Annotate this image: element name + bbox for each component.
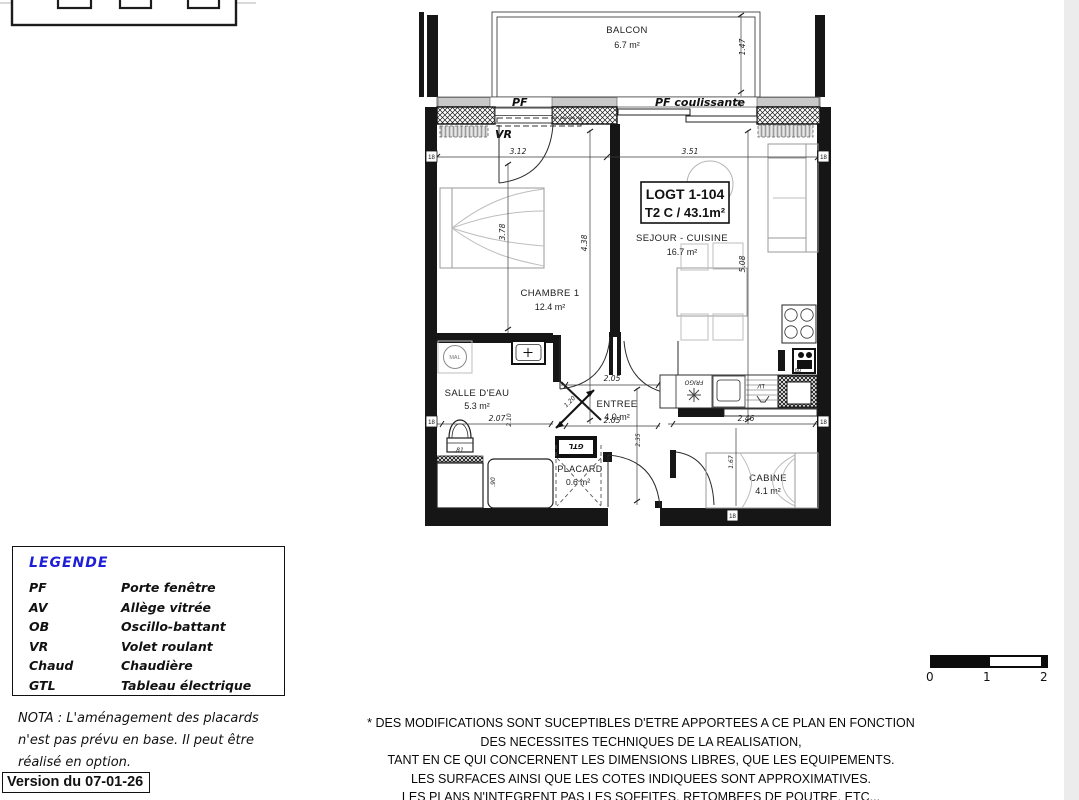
- sofa: [768, 144, 818, 252]
- dim-entree-h: 2.35: [635, 433, 642, 447]
- washbasin: [512, 341, 545, 364]
- dim-cabine-h: 1.67: [728, 455, 735, 469]
- wall-mark: 18: [428, 155, 435, 161]
- wall-mark: 18: [820, 420, 827, 426]
- dim-sejour-h: 5.08: [738, 255, 747, 272]
- legend-item-gtl: GTLTableau électrique: [29, 678, 269, 693]
- disclaimer-line: DES NECESSITES TECHNIQUES DE LA REALISAT…: [358, 733, 924, 752]
- sejour-label: SEJOUR - CUISINE: [636, 233, 728, 244]
- legend-abbr: VR: [29, 639, 121, 654]
- washing-machine: MAL: [438, 341, 472, 373]
- boiler: 60: [793, 349, 815, 374]
- cabine-area: 4.1 m²: [755, 486, 781, 496]
- pf-coulissante-label: PF coulissante: [655, 96, 745, 109]
- nota-note: NOTA : L'aménagement des placards n'est …: [18, 708, 308, 774]
- entree-label: ENTREE: [597, 399, 638, 410]
- scale-tick-0: 0: [926, 670, 934, 684]
- legend-abbr: AV: [29, 600, 121, 615]
- disclaimer-line: LES PLANS N'INTEGRENT PAS LES SOFFITES, …: [358, 788, 924, 800]
- legend-label: Chaudière: [121, 658, 193, 673]
- logt-title-box: LOGT 1-104 T2 C / 43.1m²: [641, 182, 729, 223]
- scale-bar: 0 1 2: [930, 655, 1050, 686]
- legend-label: Volet roulant: [121, 639, 213, 654]
- legend-abbr: OB: [29, 619, 121, 634]
- version-label: Version du 07-01-26: [7, 774, 143, 790]
- legend-item-chaud: ChaudChaudière: [29, 658, 269, 673]
- dim-sdb-h: 2.10: [506, 413, 513, 427]
- disclaimer-line: * DES MODIFICATIONS SONT SUCEPTIBLES D'E…: [358, 714, 924, 733]
- salle-eau-area: 5.3 m²: [464, 401, 490, 411]
- chambre-label: CHAMBRE 1: [520, 288, 579, 299]
- cooktop: [782, 305, 816, 343]
- wall-mark: 18: [729, 514, 736, 520]
- legend-item-pf: PFPorte fenêtre: [29, 580, 269, 595]
- vr-label: VR: [495, 128, 512, 141]
- logt-type-surface: T2 C / 43.1m²: [645, 205, 726, 220]
- salle-eau-label: SALLE D'EAU: [445, 388, 510, 399]
- logt-number: LOGT 1-104: [646, 186, 725, 202]
- dim-left-h: 4.38: [580, 234, 589, 251]
- legend-title: LEGENDE: [29, 555, 108, 571]
- cabine-label: CABINE: [749, 473, 787, 484]
- floor-plan-page: BALCON 6.7 m² 1.47 34: [0, 0, 1079, 800]
- scale-tick-2: 2: [1040, 670, 1048, 684]
- wall-mark: 18: [820, 155, 827, 161]
- nota-line: NOTA : L'aménagement des placards: [18, 708, 308, 730]
- mal-label: MAL: [449, 355, 460, 361]
- pf-window: [495, 108, 552, 123]
- cabine-door: [676, 452, 714, 505]
- legend-label: Allège vitrée: [121, 600, 211, 615]
- legend-item-vr: VRVolet roulant: [29, 639, 269, 654]
- sejour-area: 16.7 m²: [667, 247, 698, 257]
- legend-item-av: AVAllège vitrée: [29, 600, 269, 615]
- dim-sdb-w: 2.07: [489, 414, 506, 423]
- kitchen: FRIGO LV: [660, 305, 817, 408]
- dim-wc: .81: [454, 447, 464, 454]
- legend-box: LEGENDE PFPorte fenêtre AVAllège vitrée …: [12, 546, 285, 696]
- scale-segment-1-2: [988, 655, 1043, 668]
- frigo-label: FRIGO: [684, 379, 703, 386]
- placard-area: 0.6 m²: [566, 477, 590, 487]
- legend-abbr: GTL: [29, 678, 121, 693]
- balcon-label: BALCON: [606, 25, 647, 36]
- pf-label: PF: [512, 96, 528, 109]
- scale-numbers: 0 1 2: [930, 668, 1050, 686]
- dim-chambre-w: 3.12: [510, 147, 527, 156]
- boiler-label: 60: [795, 368, 801, 374]
- scale-segment-0-1: [930, 655, 988, 668]
- nota-line: réalisé en option.: [18, 752, 308, 774]
- legend-abbr: Chaud: [29, 658, 121, 673]
- legend-abbr: PF: [29, 580, 121, 595]
- dim-chambre-h: 3.78: [498, 223, 507, 240]
- balcony: BALCON 6.7 m² 1.47 34: [419, 12, 825, 107]
- dim-entree-w1: 2.05: [604, 374, 621, 383]
- dining-table: [677, 243, 747, 340]
- exterior-walls: [425, 107, 831, 526]
- legend-label: Porte fenêtre: [121, 580, 216, 595]
- disclaimer-line: TANT EN CE QUI CONCERNENT LES DIMENSIONS…: [358, 751, 924, 770]
- dim-sejour-w: 3.51: [682, 147, 699, 156]
- version-box: Version du 07-01-26: [2, 772, 150, 793]
- bathroom-fixtures: MAL .81 .90: [437, 341, 553, 508]
- gtl-label: GTL: [569, 442, 584, 450]
- dimension-lines: 3.12 3.51 3.78 4.38 5.08 2.07 2.10 2.05 …: [434, 129, 821, 506]
- key-plan-fragment: [0, 0, 256, 25]
- disclaimer-line: LES SURFACES AINSI QUE LES COTES INDIQUE…: [358, 770, 924, 789]
- scale-tick-1: 1: [983, 670, 991, 684]
- scale-bar-graphic: [930, 655, 1050, 668]
- legend-label: Oscillo-battant: [121, 619, 226, 634]
- balcon-area: 6.7 m²: [614, 40, 640, 50]
- dim-entree-w2: 2.05: [604, 416, 621, 425]
- chambre-area: 12.4 m²: [535, 302, 566, 312]
- scale-end-cap: [1043, 655, 1048, 668]
- interior-walls: [437, 124, 817, 508]
- pf-coulissante-window: [618, 109, 757, 122]
- legend-label: Tableau électrique: [121, 678, 251, 693]
- dim-cabine-w: 2.46: [738, 414, 755, 423]
- lv-label: LV: [757, 382, 765, 389]
- floor-plan-drawing: BALCON 6.7 m² 1.47 34: [0, 0, 1079, 545]
- chambre-bed: [440, 188, 544, 268]
- dim-douche: .90: [490, 477, 497, 487]
- entrance-door: [608, 455, 660, 507]
- dim-entree-diag: 1.20: [563, 395, 577, 410]
- wall-mark: 18: [428, 420, 435, 426]
- disclaimer-text: * DES MODIFICATIONS SONT SUCEPTIBLES D'E…: [358, 714, 924, 800]
- nota-line: n'est pas prévu en base. Il peut être: [18, 730, 308, 752]
- chambre-door: [560, 337, 610, 389]
- dim-balcon-depth: 1.47: [738, 38, 747, 55]
- legend-item-ob: OBOscillo-battant: [29, 619, 269, 634]
